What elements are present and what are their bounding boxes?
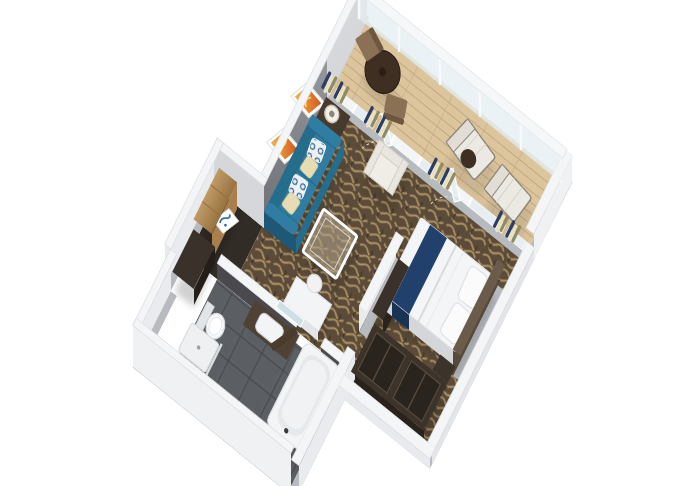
suite-floor-plan-rendering <box>0 0 680 486</box>
floor-plan-canvas <box>0 0 680 486</box>
